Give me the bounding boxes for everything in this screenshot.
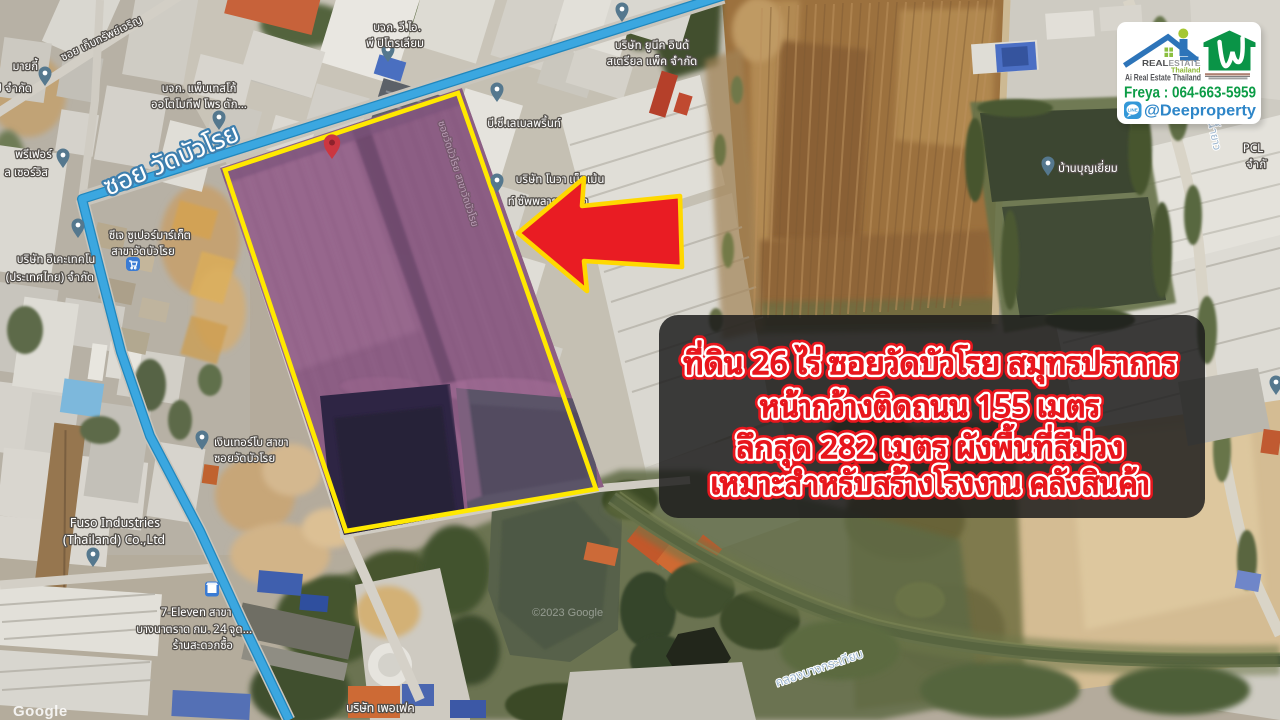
svg-text:ป จำกัด: ป จำกัด xyxy=(0,81,32,98)
svg-text:บางนาตราด กม. 24 จุด...: บางนาตราด กม. 24 จุด... xyxy=(136,622,252,639)
svg-text:บี.ซี.เลเบลพริ้นท์: บี.ซี.เลเบลพริ้นท์ xyxy=(487,114,561,133)
svg-text:(ประเทศไทย) จำกัด: (ประเทศไทย) จำกัด xyxy=(6,270,94,287)
svg-text:Google: Google xyxy=(13,703,68,720)
svg-text:ร้านสะดวกซื้อ: ร้านสะดวกซื้อ xyxy=(173,635,233,655)
svg-text:สเตรียล แพ็ค จำกัด: สเตรียล แพ็ค จำกัด xyxy=(607,54,698,71)
svg-text:พรีเฟอร์: พรีเฟอร์ xyxy=(15,147,52,164)
svg-text:พี ปิโตรเลียม: พี ปิโตรเลียม xyxy=(366,36,424,53)
svg-text:@Deeproperty: @Deeproperty xyxy=(1144,103,1256,120)
svg-text:ซอยวัดบัวโรย: ซอยวัดบัวโรย xyxy=(214,451,275,468)
svg-text:Ai Real Estate Thailand: Ai Real Estate Thailand xyxy=(1125,73,1201,84)
svg-text:(Thailand) Co.,Ltd: (Thailand) Co.,Ltd xyxy=(63,531,165,550)
svg-text:ออโตโมทีฟ โพร ดัก...: ออโตโมทีฟ โพร ดัก... xyxy=(151,97,247,114)
svg-text:ซีเจ ซูเปอร์มาร์เก็ต: ซีเจ ซูเปอร์มาร์เก็ต xyxy=(109,228,192,245)
svg-text:บริษัท อิเคะเทคโน: บริษัท อิเคะเทคโน xyxy=(17,252,96,269)
svg-text:บริษัท โนวา เน็ตเม้น: บริษัท โนวา เน็ตเม้น xyxy=(516,172,605,189)
svg-text:Freya : 064-663-5959: Freya : 064-663-5959 xyxy=(1124,85,1256,102)
svg-text:มายกี้: มายกี้ xyxy=(13,56,38,76)
svg-text:REAL: REAL xyxy=(1142,59,1169,68)
svg-text:©2023 Google: ©2023 Google xyxy=(532,607,603,619)
svg-text:บ้านบุญเยี่ยม: บ้านบุญเยี่ยม xyxy=(1058,158,1118,178)
svg-text:LINE: LINE xyxy=(1128,108,1138,113)
svg-text:PCL: PCL xyxy=(1243,141,1263,158)
svg-text:7-Eleven สาขา: 7-Eleven สาขา xyxy=(161,605,232,622)
svg-text:บริษัท เพอเฟค: บริษัท เพอเฟค xyxy=(346,700,415,718)
svg-text:จำกั: จำกั xyxy=(1246,157,1267,174)
svg-text:เหมาะสำหรับสร้างโรงงาน คลังสิน: เหมาะสำหรับสร้างโรงงาน คลังสินค้า xyxy=(710,455,1150,505)
svg-text:สาขาวัดบัวโรย: สาขาวัดบัวโรย xyxy=(111,244,174,261)
svg-text:บจก. วี.ไอ.: บจก. วี.ไอ. xyxy=(373,20,421,37)
svg-text:บริษัท ยูนีค อินด้: บริษัท ยูนีค อินด้ xyxy=(615,38,690,55)
svg-text:บจก. แพ็บเทสโก้: บจก. แพ็บเทสโก้ xyxy=(162,81,237,98)
svg-text:ล เซอร์วิส: ล เซอร์วิส xyxy=(4,165,48,182)
svg-text:เงินเทอร์โบ สาขา: เงินเทอร์โบ สาขา xyxy=(214,435,288,452)
